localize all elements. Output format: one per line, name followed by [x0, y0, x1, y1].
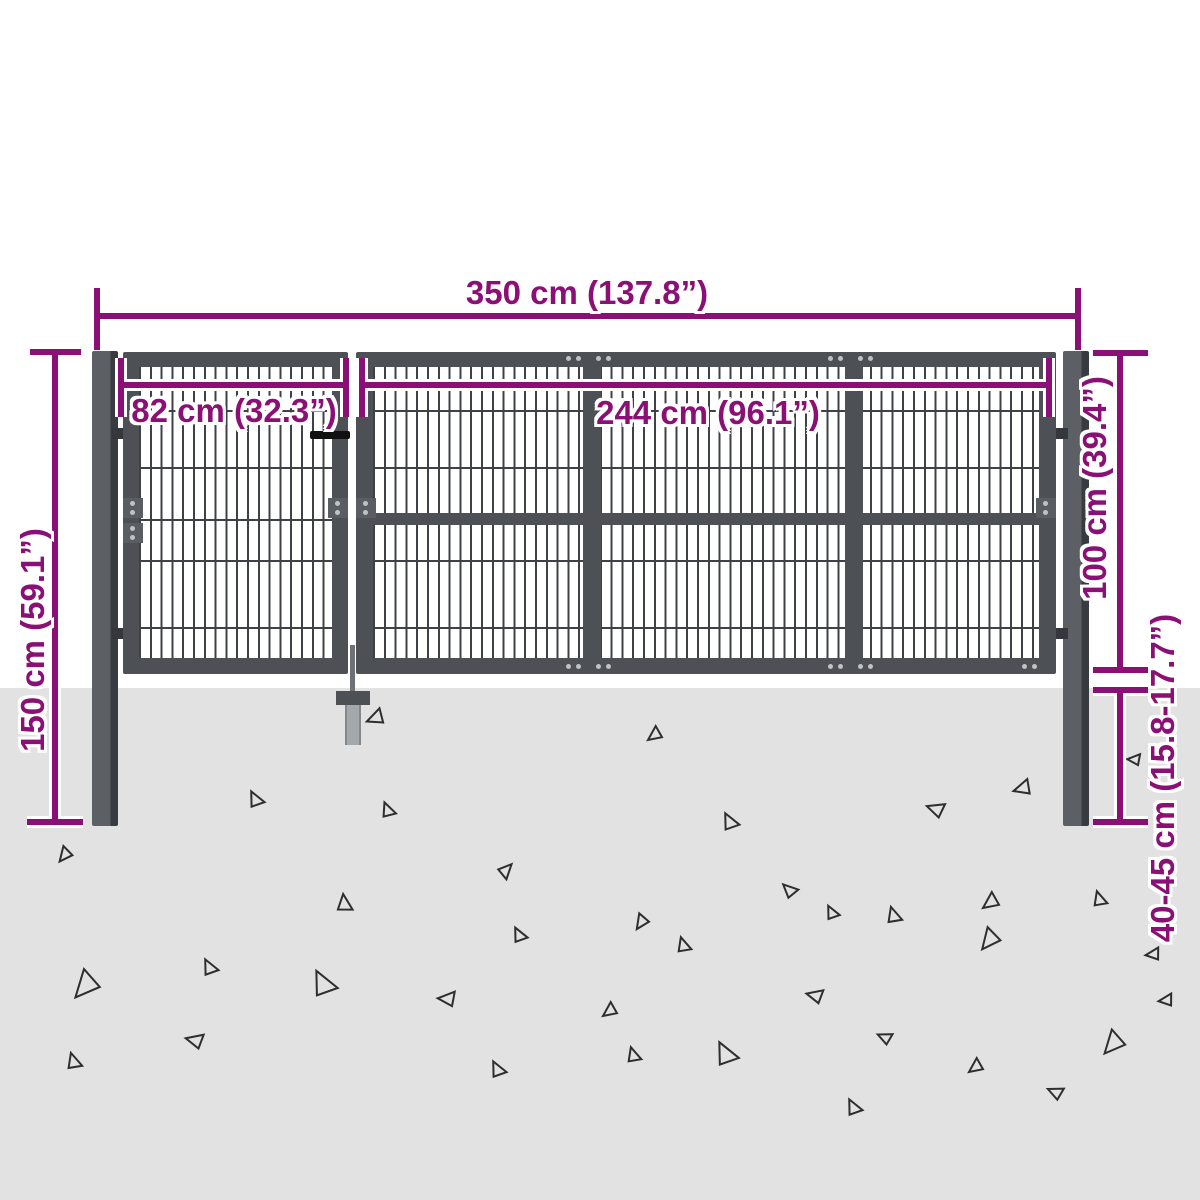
- bolt-dot: [566, 664, 571, 669]
- gate-dimension-diagram: 350 cm (137.8”) 82 cm (32.3”) 244 cm (96…: [0, 0, 1200, 1200]
- mesh-wire: [139, 519, 332, 521]
- right-gate-width-dimension-label: 244 cm (96.1”): [596, 394, 820, 432]
- post-height-dimension-label: 150 cm (59.1”): [14, 528, 52, 752]
- bolt-dot: [1032, 664, 1037, 669]
- hinge-plate: [1036, 498, 1056, 518]
- bolt-dot: [130, 510, 135, 515]
- hinge-plate: [123, 498, 143, 518]
- bolt-dot: [596, 664, 601, 669]
- bolt-dot: [130, 535, 135, 540]
- bolt-dot: [335, 510, 340, 515]
- bolt-dot: [606, 356, 611, 361]
- bolt-dot: [828, 356, 833, 361]
- bolt-dot: [130, 526, 135, 531]
- mesh-wire: [373, 467, 1039, 469]
- bolt-dot: [838, 356, 843, 361]
- mesh-wire: [139, 467, 332, 469]
- bolt-dot: [868, 356, 873, 361]
- bolt-dot: [838, 664, 843, 669]
- bolt-dot: [858, 664, 863, 669]
- mesh-wire: [139, 560, 332, 562]
- bolt-dot: [363, 501, 368, 506]
- hinge-plate: [356, 498, 376, 518]
- ground-anchor-stem: [345, 705, 361, 745]
- bolt-dot: [566, 356, 571, 361]
- gate-middle-rail: [372, 513, 1040, 525]
- bolt-dot: [576, 356, 581, 361]
- mesh-wire: [139, 627, 332, 629]
- ground-anchor-cap: [336, 691, 370, 705]
- bolt-dot: [130, 501, 135, 506]
- gate-handle: [310, 431, 350, 439]
- gate-height-dimension-label: 100 cm (39.4”): [1076, 376, 1114, 600]
- left-gate-width-dimension-label: 82 cm (32.3”): [131, 392, 336, 430]
- bolt-dot: [1043, 510, 1048, 515]
- bolt-dot: [1022, 664, 1027, 669]
- bolt-dot: [363, 510, 368, 515]
- left-fence-post: [92, 351, 118, 826]
- bolt-dot: [596, 356, 601, 361]
- bolt-dot: [335, 501, 340, 506]
- drop-bolt-rod: [350, 645, 355, 693]
- underground-depth-dimension-label: 40-45 cm (15.8-17.7”): [1144, 614, 1182, 942]
- mesh-wire: [373, 627, 1039, 629]
- bolt-dot: [606, 664, 611, 669]
- total-width-dimension-label: 350 cm (137.8”): [466, 274, 708, 312]
- latch-plate: [328, 498, 348, 518]
- bolt-dot: [1043, 501, 1048, 506]
- bolt-dot: [828, 664, 833, 669]
- hinge-plate: [123, 523, 143, 543]
- ground-area: [0, 688, 1200, 1200]
- mesh-wire: [373, 560, 1039, 562]
- bolt-dot: [868, 664, 873, 669]
- bolt-dot: [576, 664, 581, 669]
- bolt-dot: [858, 356, 863, 361]
